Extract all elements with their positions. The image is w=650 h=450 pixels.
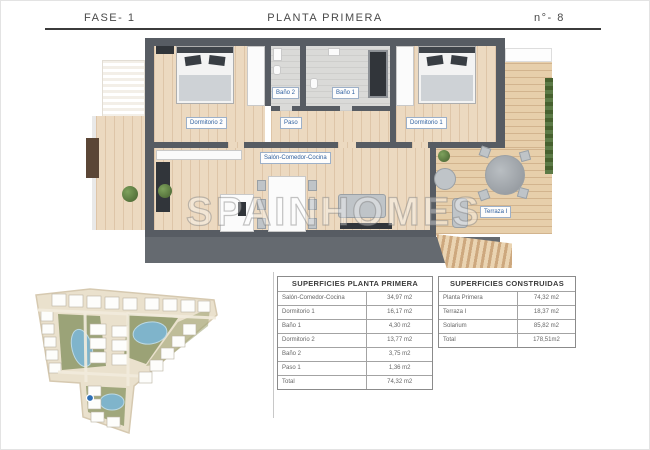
left-louver-deck — [102, 60, 145, 118]
closet-dormitorio-2 — [247, 46, 265, 106]
table-superficies-construidas: SUPERFICIES CONSTRUIDAS Planta Primera 7… — [438, 276, 576, 348]
row-value: 1,36 m2 — [367, 362, 432, 375]
shower-bano-1 — [368, 50, 388, 98]
row-label: Paso 1 — [278, 362, 367, 375]
table-row: Baño 1 4,30 m2 — [278, 319, 432, 333]
terrace-hedge — [545, 78, 553, 174]
row-value: 3,75 m2 — [367, 348, 432, 361]
row-label: Planta Primera — [439, 292, 518, 305]
bed-dormitorio-1 — [418, 46, 476, 104]
terrace-pergola-edge — [505, 48, 552, 62]
floor-plan-render: Dormitorio 2 Baño 2 Baño 1 Paso Dormitor… — [100, 38, 560, 268]
room-label-paso: Paso — [280, 117, 302, 129]
site-plan — [28, 286, 236, 438]
row-value: 74,32 m2 — [518, 292, 575, 305]
door-gap-bano-1 — [340, 106, 352, 111]
row-value: 34,97 m2 — [367, 292, 432, 305]
room-label-bano-2: Baño 2 — [272, 87, 299, 99]
section-divider — [273, 272, 274, 418]
header-rule — [45, 28, 601, 30]
wall-bano1-dorm1 — [390, 46, 396, 142]
row-label: Total — [278, 376, 367, 389]
row-label: Solarium — [439, 320, 518, 333]
wall-top — [145, 38, 505, 46]
bed-blanket — [421, 75, 473, 101]
table-row: Terraza I 18,37 m2 — [439, 305, 575, 319]
plan-sheet: FASE- 1 PLANTA PRIMERA n°- 8 — [0, 0, 650, 450]
row-value: 4,30 m2 — [367, 320, 432, 333]
room-label-bano-1: Baño 1 — [332, 87, 359, 99]
room-label-dormitorio-1: Dormitorio 1 — [406, 117, 447, 129]
closet-dormitorio-1 — [396, 46, 414, 106]
bed-headboard — [419, 47, 475, 53]
table-title: SUPERFICIES PLANTA PRIMERA — [278, 277, 432, 291]
wall-left — [145, 38, 154, 237]
row-label: Baño 1 — [278, 320, 367, 333]
row-label: Total — [439, 334, 518, 347]
table-row: Total 74,32 m2 — [278, 375, 432, 389]
room-label-salon: Salón-Comedor-Cocina — [260, 152, 331, 164]
toilet-bano-1 — [310, 78, 318, 89]
door-gap-dormitorio-1 — [412, 142, 428, 148]
table-row: Dormitorio 2 13,77 m2 — [278, 333, 432, 347]
table-title: SUPERFICIES CONSTRUIDAS — [439, 277, 575, 291]
table-row: Total 178,51m2 — [439, 333, 575, 347]
bed-dormitorio-2 — [176, 46, 234, 104]
unit-location-marker-icon — [87, 395, 94, 402]
row-value: 85,82 m2 — [518, 320, 575, 333]
table-row: Planta Primera 74,32 m2 — [439, 291, 575, 305]
sink-bano-1 — [328, 48, 340, 56]
terrace-plant-icon — [438, 150, 450, 162]
row-label: Dormitorio 1 — [278, 306, 367, 319]
table-superficies-planta-primera: SUPERFICIES PLANTA PRIMERA Salón-Comedor… — [277, 276, 433, 390]
wall-right-bedrooms — [496, 38, 505, 148]
wall-bano2-bano1 — [300, 46, 306, 106]
table-row: Salón-Comedor-Cocina 34,97 m2 — [278, 291, 432, 305]
terrace-armchair — [434, 168, 456, 190]
row-label: Baño 2 — [278, 348, 367, 361]
row-label: Salón-Comedor-Cocina — [278, 292, 367, 305]
door-gap-dormitorio-2 — [228, 142, 244, 148]
kitchen-counter — [156, 150, 242, 160]
left-balcony-shutter — [86, 138, 99, 178]
row-value: 178,51m2 — [518, 334, 575, 347]
watermark: SPAINHOMES — [164, 190, 504, 235]
door-gap-bano-2 — [280, 106, 292, 111]
toilet-bano-2 — [273, 65, 281, 75]
door-gap-paso — [338, 142, 356, 148]
table-row: Solarium 85,82 m2 — [439, 319, 575, 333]
wall-dorm2-bano2 — [265, 46, 271, 106]
balcony-plant-icon — [122, 186, 138, 202]
row-value: 16,17 m2 — [367, 306, 432, 319]
bed-headboard — [177, 47, 233, 53]
room-label-dormitorio-2: Dormitorio 2 — [186, 117, 227, 129]
bed-blanket — [179, 75, 231, 101]
bed-pillow-icon — [209, 55, 226, 66]
table-row: Baño 2 3,75 m2 — [278, 347, 432, 361]
row-value: 13,77 m2 — [367, 334, 432, 347]
sink-bano-2 — [273, 48, 282, 61]
wall-mid-horizontal — [145, 142, 505, 148]
unit-number: n°- 8 — [534, 12, 565, 24]
row-label: Terraza I — [439, 306, 518, 319]
row-value: 74,32 m2 — [367, 376, 432, 389]
table-row: Paso 1 1,36 m2 — [278, 361, 432, 375]
bed-pillow-icon — [451, 55, 468, 66]
bed-pillow-icon — [184, 55, 201, 66]
wardrobe-dormitorio-2 — [156, 46, 174, 54]
table-row: Dormitorio 1 16,17 m2 — [278, 305, 432, 319]
left-balcony-floor — [92, 116, 145, 230]
bed-pillow-icon — [426, 55, 443, 66]
terrace-steps — [436, 234, 512, 268]
row-value: 18,37 m2 — [518, 306, 575, 319]
row-label: Dormitorio 2 — [278, 334, 367, 347]
